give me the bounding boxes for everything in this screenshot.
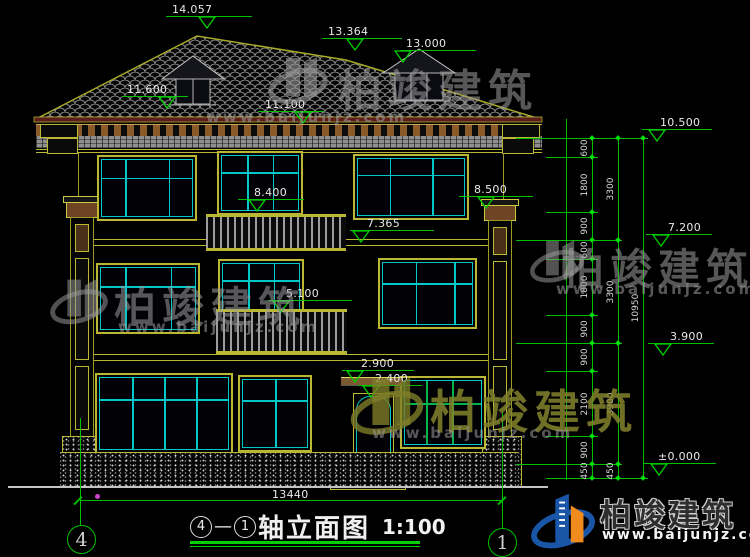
- floor-band: [78, 354, 502, 355]
- elevation-label-right-top: 10.500: [660, 116, 700, 129]
- pilaster-left-capital: [66, 202, 98, 218]
- elevation-triangle: [477, 196, 495, 209]
- survey-point-marker: [95, 494, 100, 499]
- pilaster-left-panel: [75, 224, 89, 252]
- pilaster-right-panel: [493, 261, 507, 360]
- dim-label: 3300: [606, 178, 616, 201]
- elevation-label-third-floor: 7.365: [367, 217, 400, 230]
- elevation-triangle: [198, 16, 216, 29]
- level-line: [516, 343, 622, 344]
- elevation-label-right-third: 7.200: [668, 221, 701, 234]
- dim-label: 450: [606, 462, 616, 479]
- watermark-url: www.baijunjz.com: [206, 108, 407, 126]
- balcony-railing-3f: [206, 214, 346, 251]
- elevation-label-secondary-ridge: 13.364: [328, 25, 368, 38]
- watermark-url: www.baijunjz.com: [556, 280, 750, 298]
- elev-line: [459, 196, 533, 197]
- elevation-triangle: [346, 38, 364, 51]
- eave-end-left: [40, 124, 78, 138]
- title-axis-to: 1: [234, 516, 256, 538]
- dim-label: 1800: [580, 174, 590, 197]
- pilaster-left-panel: [75, 366, 89, 430]
- elevation-label-right-ground: ±0.000: [658, 450, 701, 463]
- elevation-label-roof-left: 11.600: [127, 83, 167, 96]
- watermark-url: www.baijunjz.com: [372, 424, 573, 442]
- dim-label: 900: [580, 320, 590, 337]
- elevation-triangle: [352, 230, 370, 243]
- bottom-dimension-label: 13440: [272, 488, 309, 501]
- title-text: 轴立面图: [258, 508, 370, 545]
- elevation-triangle: [158, 96, 176, 109]
- title-dash: —: [214, 516, 232, 537]
- logo-url: www.baijunjz.com: [602, 527, 750, 543]
- plinth-band: [60, 452, 518, 487]
- brand-logo: 柏竣建筑 www.baijunjz.com: [528, 484, 750, 557]
- dim-label: 900: [580, 441, 590, 458]
- title-underline: [190, 541, 420, 544]
- drawing-title: 4—1轴立面图1:100: [190, 508, 446, 545]
- axis-number: 1: [496, 532, 508, 554]
- window-1f-center: [238, 375, 312, 452]
- watermark-building-icon: [48, 266, 110, 332]
- dim-label: 450: [580, 462, 590, 479]
- floor-band: [78, 360, 502, 361]
- level-line: [546, 478, 648, 479]
- title-axis-from: 4: [190, 516, 212, 538]
- dim-line-outer: [643, 136, 644, 480]
- dim-label: 600: [580, 139, 590, 156]
- window-3f-left: [97, 155, 197, 221]
- elevation-triangle: [648, 129, 666, 142]
- axis-number: 4: [75, 529, 87, 551]
- elevation-triangle: [248, 199, 266, 212]
- watermark-building-icon: [266, 46, 330, 110]
- elev-line: [122, 96, 188, 97]
- window-3f-right: [353, 154, 469, 220]
- axis-bubble-right: 1: [488, 528, 517, 557]
- eave-end-right: [502, 124, 540, 138]
- title-underline: [190, 546, 420, 547]
- axis-bubble-left: 4: [67, 525, 96, 554]
- eave-end-right: [502, 138, 534, 154]
- pilaster-right-panel: [493, 227, 507, 255]
- eave-end-left: [47, 138, 78, 154]
- elevation-label-peak: 14.057: [172, 3, 212, 16]
- elevation-label-pilaster-top: 8.500: [474, 183, 507, 196]
- window-2f-right: [378, 258, 477, 329]
- dim-label: 900: [580, 348, 590, 365]
- axis-line-left: [80, 418, 81, 525]
- elevation-triangle: [650, 463, 668, 476]
- elevation-label-third-balcony: 8.400: [254, 186, 287, 199]
- cornice-frieze-band: [36, 136, 542, 148]
- cornice-line: [36, 149, 542, 150]
- elevation-triangle: [654, 343, 672, 356]
- window-1f-left: [95, 373, 233, 454]
- watermark-url: www.baijunjz.com: [118, 318, 319, 336]
- elevation-label-dormer: 13.000: [406, 37, 446, 50]
- title-scale: 1:100: [382, 515, 446, 539]
- cad-elevation-drawing: 14.057 13.364 13.000 11.600 11.100 8.400…: [0, 0, 750, 557]
- elevation-label-right-second: 3.900: [670, 330, 703, 343]
- logo-icon: [530, 486, 600, 556]
